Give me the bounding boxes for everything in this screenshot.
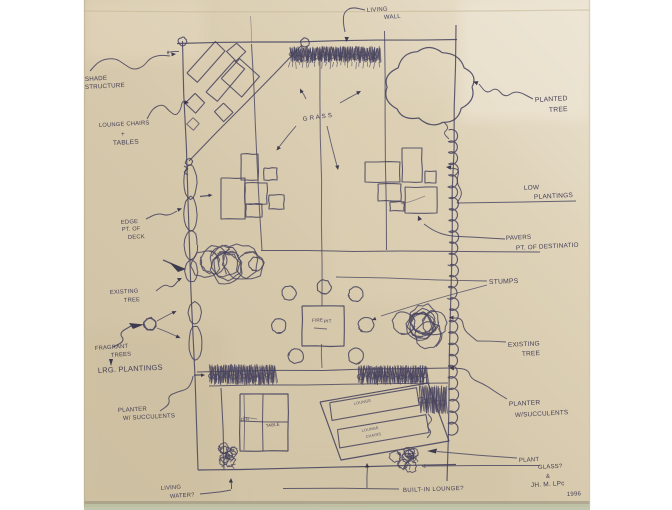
svg-text:PLANT: PLANT [519,457,540,464]
svg-text:TREE: TREE [549,106,569,114]
svg-text:PAVERS: PAVERS [506,234,532,242]
svg-text:PT. OF: PT. OF [122,226,141,233]
svg-text:&: & [546,474,551,480]
svg-text:WALL: WALL [384,14,402,21]
svg-text:TREE: TREE [522,350,541,358]
svg-text:TABLES: TABLES [113,139,140,147]
svg-text:FIRE: FIRE [312,317,324,323]
svg-text:DECK: DECK [128,234,145,241]
svg-text:+: + [121,131,125,138]
svg-text:SHADE: SHADE [85,75,108,83]
svg-text:TREE: TREE [124,297,141,304]
svg-text:1996: 1996 [567,491,582,498]
svg-text:LOW: LOW [524,184,540,192]
svg-text:STUMPS: STUMPS [489,278,519,286]
svg-text:EDGE: EDGE [121,219,139,226]
svg-text:PIT: PIT [324,318,332,324]
